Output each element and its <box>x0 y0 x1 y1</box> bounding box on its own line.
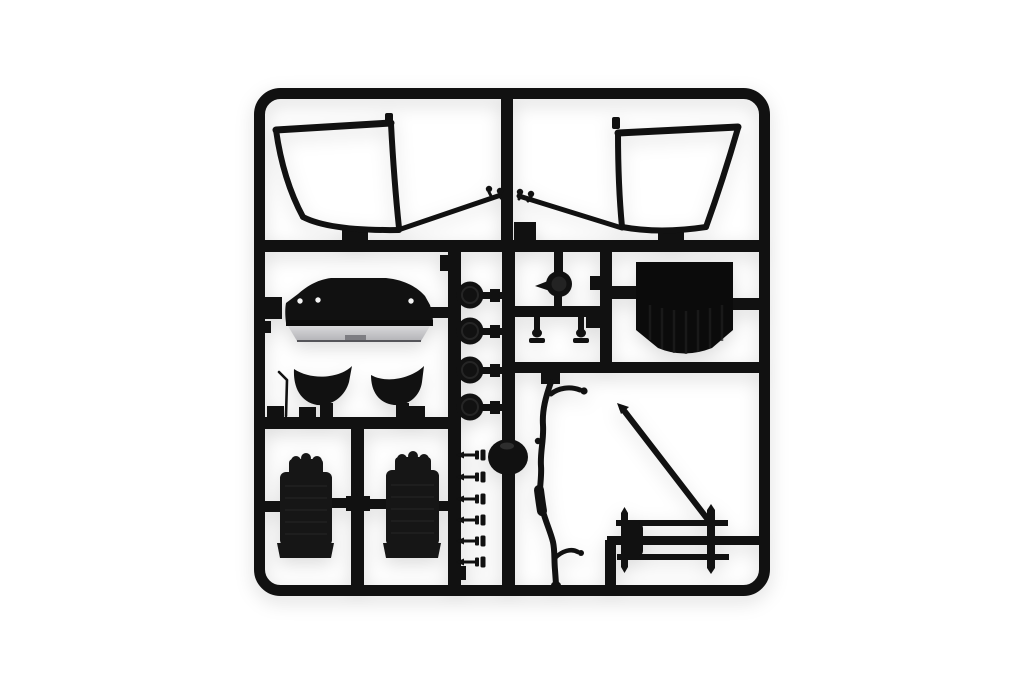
peg-flange <box>475 516 479 525</box>
sprue-photo <box>0 0 1024 678</box>
peg-flange <box>475 537 479 546</box>
windshield-bottom-bar <box>622 227 706 231</box>
gear-lever <box>331 439 388 511</box>
panel-stub-right <box>731 298 761 310</box>
peg-head <box>481 515 486 526</box>
peg-head <box>481 536 486 547</box>
runner-step-spine <box>514 222 536 242</box>
axle-post-tip <box>621 507 628 513</box>
lever-stub-right <box>364 499 388 509</box>
disc <box>457 282 484 309</box>
pin-bulge <box>532 329 542 338</box>
pin-foot <box>573 338 589 343</box>
drum-part <box>535 251 572 307</box>
cowl-band <box>286 320 433 326</box>
seat-base-flare <box>383 543 441 558</box>
wheel-disc-3 <box>457 357 507 384</box>
runner-spine-top <box>501 96 513 246</box>
dome-highlight <box>500 443 514 450</box>
windshield-bottom-bar <box>303 217 399 230</box>
exhaust-pipe <box>535 371 588 589</box>
seat-base-flare <box>277 543 334 558</box>
disc <box>457 394 484 421</box>
runner-cowl-stub-right <box>430 307 449 318</box>
wheel-disc-2 <box>457 318 507 345</box>
axle-post-tip <box>707 504 715 510</box>
disc <box>457 318 484 345</box>
peg-head <box>481 472 486 483</box>
peg-flange <box>475 495 479 504</box>
peg-flange <box>475 473 479 482</box>
support-rod <box>617 403 709 521</box>
panel-ribs <box>650 305 722 354</box>
runner-block <box>406 406 425 420</box>
drum-core <box>552 277 567 292</box>
disc-connector <box>490 364 500 377</box>
runner-nub <box>590 276 602 290</box>
fender-shell-left <box>294 366 352 405</box>
disc-connector <box>490 289 500 302</box>
seat-stub-frame <box>259 501 283 512</box>
windshield-left-leg <box>618 133 622 227</box>
windshield-right-leg <box>391 124 399 228</box>
brace-knob <box>497 188 503 194</box>
brace-rod-left <box>401 196 498 229</box>
fender-stem <box>320 403 333 419</box>
runner-block <box>299 407 316 420</box>
drum-stem-top <box>554 251 563 273</box>
windshield-top-bar <box>276 123 391 130</box>
axle-post-right <box>707 510 715 568</box>
rear-panel <box>610 262 761 354</box>
exhaust-fork <box>555 550 578 558</box>
wheel-disc-4 <box>457 394 507 421</box>
peg-shaft <box>462 498 477 501</box>
exhaust-hook <box>551 388 580 394</box>
exhaust-tube <box>540 382 556 584</box>
peg-flange <box>475 558 479 567</box>
peg-flange <box>475 451 479 460</box>
windshield-tab <box>612 117 620 129</box>
brace-knob <box>517 189 523 195</box>
peg-head <box>481 450 486 461</box>
windshield-frame-left <box>276 113 399 230</box>
peg-shaft <box>462 561 477 564</box>
peg-shaft <box>462 454 477 457</box>
windshield-frame-right <box>612 117 738 231</box>
pin-foot <box>529 338 545 343</box>
axle-block <box>624 523 643 556</box>
brace-knob <box>486 186 492 192</box>
exhaust-nub <box>535 438 541 444</box>
axle-assembly <box>607 504 766 574</box>
brace-knob <box>528 191 534 197</box>
peg-shaft <box>462 476 477 479</box>
runner-nub <box>453 566 466 580</box>
cowl-skirt-notch <box>345 335 366 340</box>
cowl-panel <box>285 278 433 341</box>
cowl-hole <box>408 298 413 303</box>
wheel-discs <box>457 282 507 421</box>
runner-step-block <box>586 313 601 328</box>
peg-head <box>481 557 486 568</box>
fender-shell-right <box>371 366 424 405</box>
exhaust-foot <box>551 581 561 588</box>
peg-shaft <box>462 540 477 543</box>
hanger-pins <box>529 316 589 343</box>
disc <box>457 357 484 384</box>
runner-block <box>267 406 284 420</box>
disc-connector <box>490 325 500 338</box>
lever-stub-left <box>331 498 351 508</box>
runner-riser-bottom-right <box>605 540 616 592</box>
cowl-hole <box>315 297 320 302</box>
pin-bulge <box>576 329 586 338</box>
exhaust-hook-knob <box>580 387 587 394</box>
rod-shaft <box>622 408 709 521</box>
runner-nub <box>259 321 271 333</box>
windshield-top-bar <box>618 127 738 133</box>
panel-stub-left <box>610 286 637 299</box>
axle-post-tip <box>707 568 715 574</box>
runner-right-vertical <box>600 250 612 373</box>
peg-shaft <box>462 519 477 522</box>
axle-post-tip <box>621 567 628 573</box>
windshield-right-leg <box>706 128 738 227</box>
hanger-pin-1 <box>529 316 545 343</box>
bucket-seat-right <box>383 451 450 558</box>
bucket-seat-left <box>259 453 334 558</box>
runner-cowl-stub-left <box>259 297 282 319</box>
cowl-hole <box>297 298 302 303</box>
fender-shells <box>267 366 425 420</box>
windshield-left-leg <box>276 130 303 217</box>
dome-hub <box>488 439 528 475</box>
peg-head <box>481 494 486 505</box>
exhaust-bulge <box>539 490 542 511</box>
wheel-disc-1 <box>457 282 507 309</box>
exhaust-fork-knob <box>578 550 584 556</box>
disc-connector <box>490 401 500 414</box>
runner-nub <box>440 255 461 271</box>
